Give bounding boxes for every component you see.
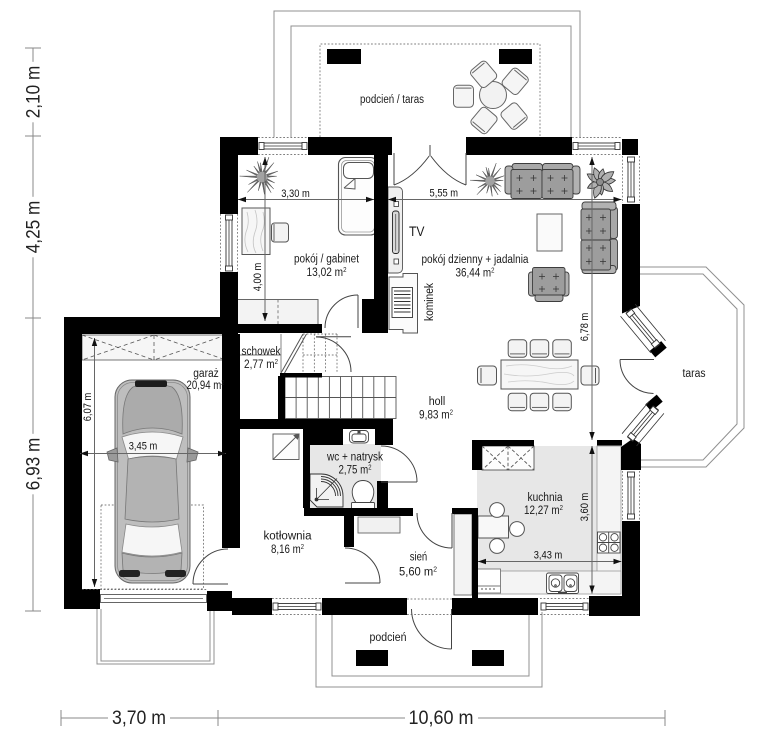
svg-text:6,78 m: 6,78 m xyxy=(579,313,591,342)
svg-text:3,43 m: 3,43 m xyxy=(534,550,563,562)
svg-text:pokój dzienny + jadalnia: pokój dzienny + jadalnia xyxy=(422,254,530,266)
svg-text:3,60 m: 3,60 m xyxy=(579,493,591,522)
svg-text:8,16 m2: 8,16 m2 xyxy=(271,544,304,556)
svg-text:3,45 m: 3,45 m xyxy=(129,441,158,453)
svg-text:12,27 m2: 12,27 m2 xyxy=(524,505,563,517)
svg-text:13,02 m2: 13,02 m2 xyxy=(307,267,347,279)
svg-text:podcień / taras: podcień / taras xyxy=(360,94,424,106)
svg-text:taras: taras xyxy=(683,368,706,380)
svg-text:36,44 m2: 36,44 m2 xyxy=(456,268,495,280)
svg-text:garaż: garaż xyxy=(193,368,219,380)
svg-text:kotłownia: kotłownia xyxy=(264,531,313,543)
svg-text:3,30 m: 3,30 m xyxy=(281,188,310,200)
svg-text:4,00 m: 4,00 m xyxy=(252,263,264,292)
svg-text:2,77 m2: 2,77 m2 xyxy=(244,359,278,371)
svg-text:pokój / gabinet: pokój / gabinet xyxy=(294,254,360,266)
svg-text:wc + natrysk: wc + natrysk xyxy=(326,452,383,464)
svg-text:6,93 m: 6,93 m xyxy=(23,438,45,491)
svg-text:holl: holl xyxy=(429,396,446,408)
svg-text:3,70 m: 3,70 m xyxy=(112,707,166,729)
svg-text:4,25 m: 4,25 m xyxy=(23,201,45,254)
svg-text:schowek: schowek xyxy=(242,346,281,358)
svg-text:20,94 m2: 20,94 m2 xyxy=(187,380,225,392)
svg-text:6,07 m: 6,07 m xyxy=(82,393,94,422)
svg-text:kuchnia: kuchnia xyxy=(528,492,564,504)
svg-text:10,60 m: 10,60 m xyxy=(409,707,474,729)
svg-text:5,60 m2: 5,60 m2 xyxy=(399,567,437,579)
svg-text:TV: TV xyxy=(409,223,425,239)
svg-text:2,75 m2: 2,75 m2 xyxy=(339,465,372,477)
svg-text:2,10 m: 2,10 m xyxy=(23,66,45,119)
svg-text:9,83 m2: 9,83 m2 xyxy=(419,410,453,422)
svg-text:podcień: podcień xyxy=(370,632,407,644)
svg-text:kominek: kominek xyxy=(424,283,436,321)
svg-text:5,55 m: 5,55 m xyxy=(430,188,459,200)
svg-text:sień: sień xyxy=(410,552,428,564)
